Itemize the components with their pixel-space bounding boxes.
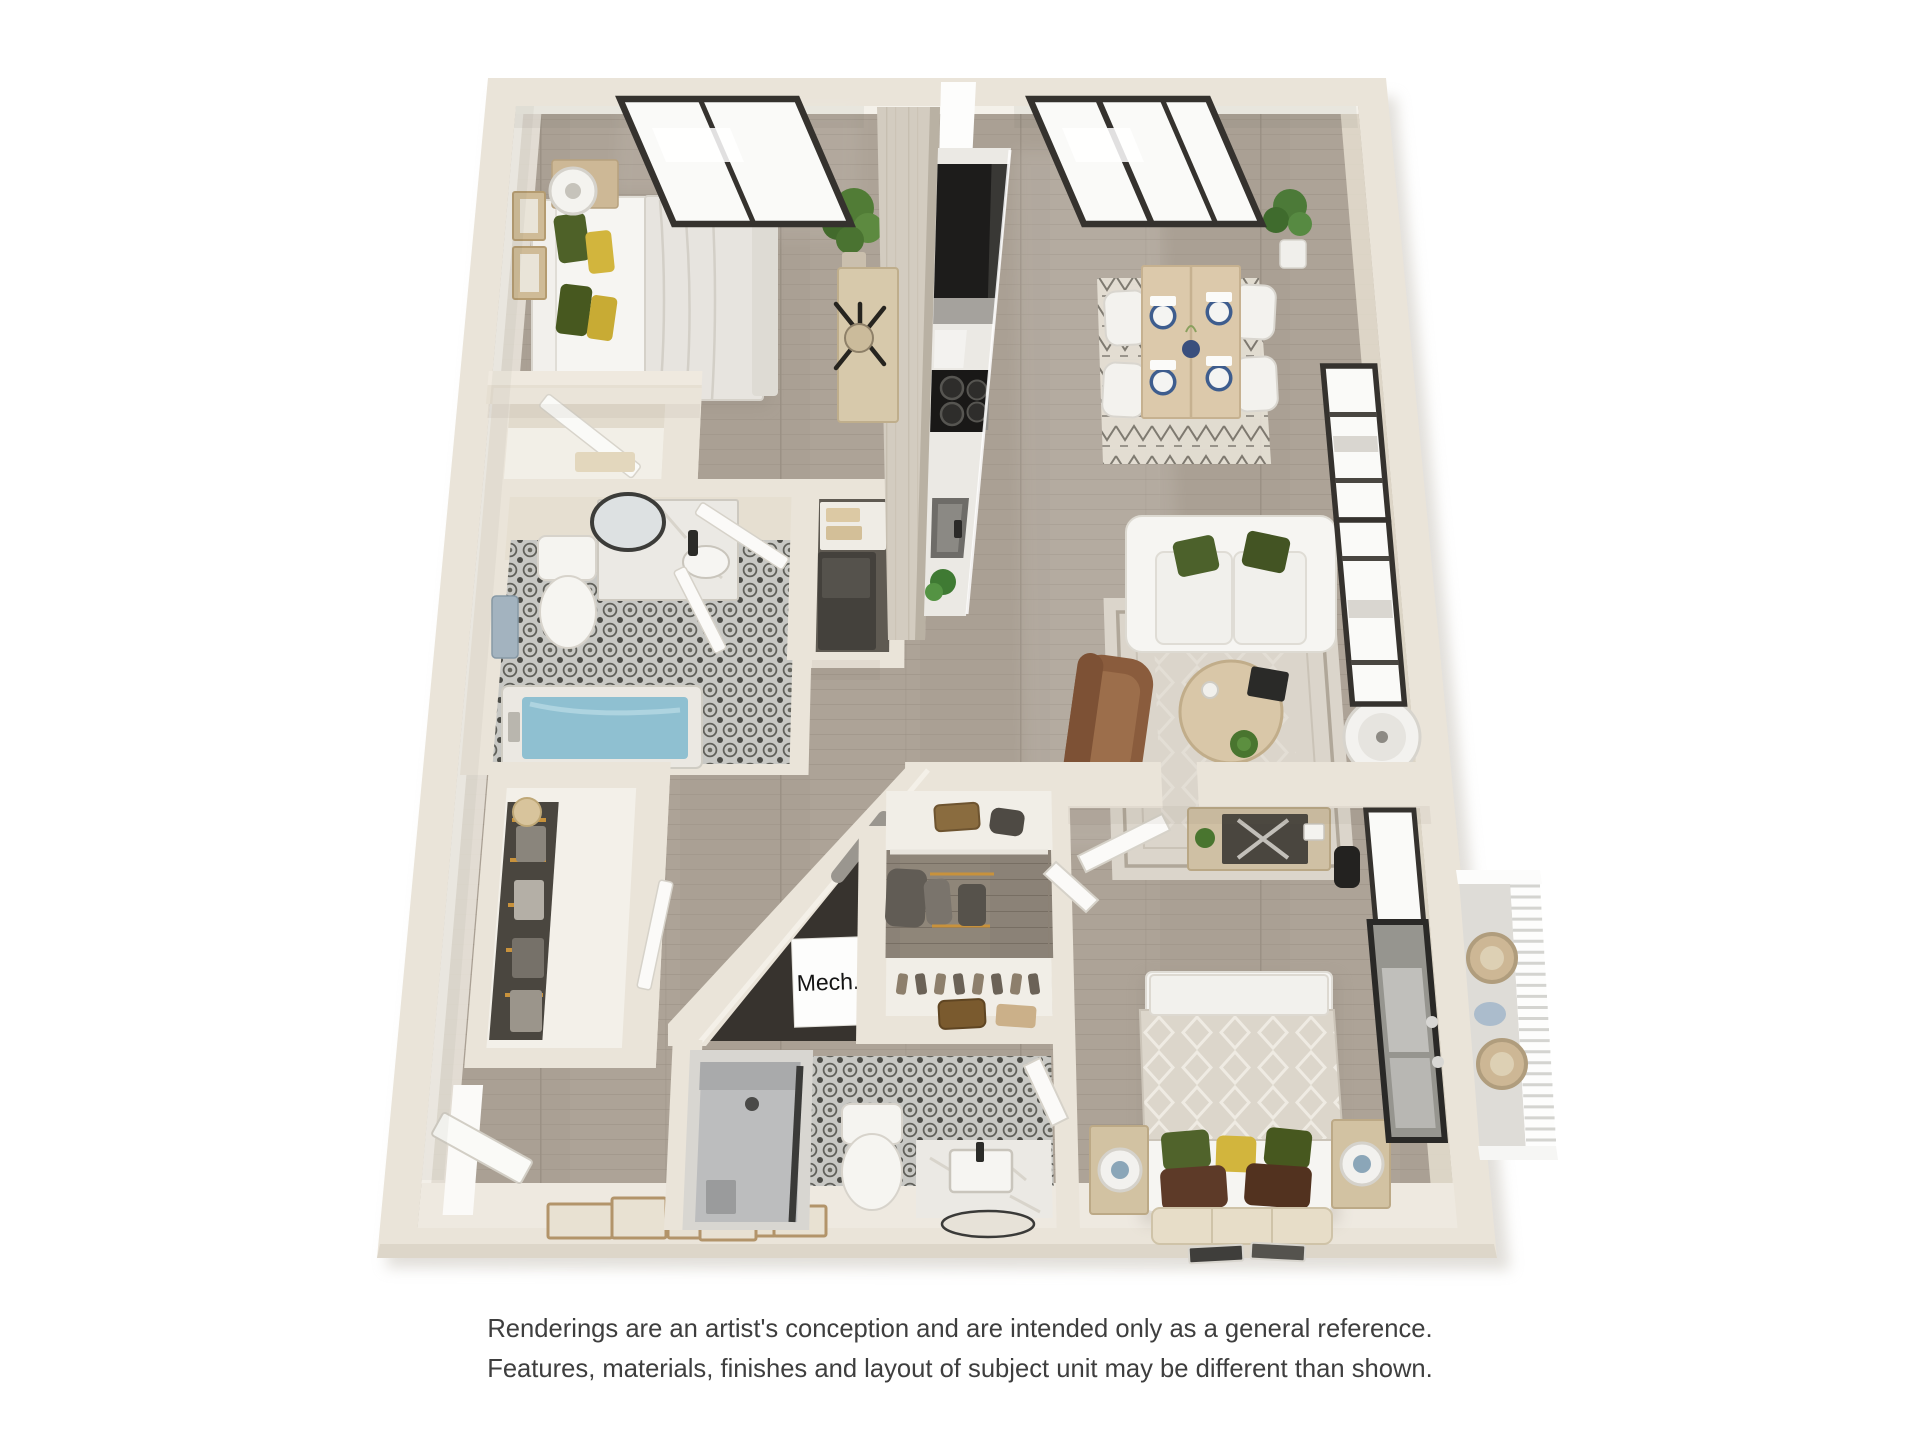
svg-text:Mech.: Mech. (796, 968, 860, 996)
svg-text:Renderings are an artist's con: Renderings are an artist's conception an… (487, 1315, 1432, 1343)
svg-text:Features, materials, finishes: Features, materials, finishes and layout… (487, 1355, 1433, 1383)
